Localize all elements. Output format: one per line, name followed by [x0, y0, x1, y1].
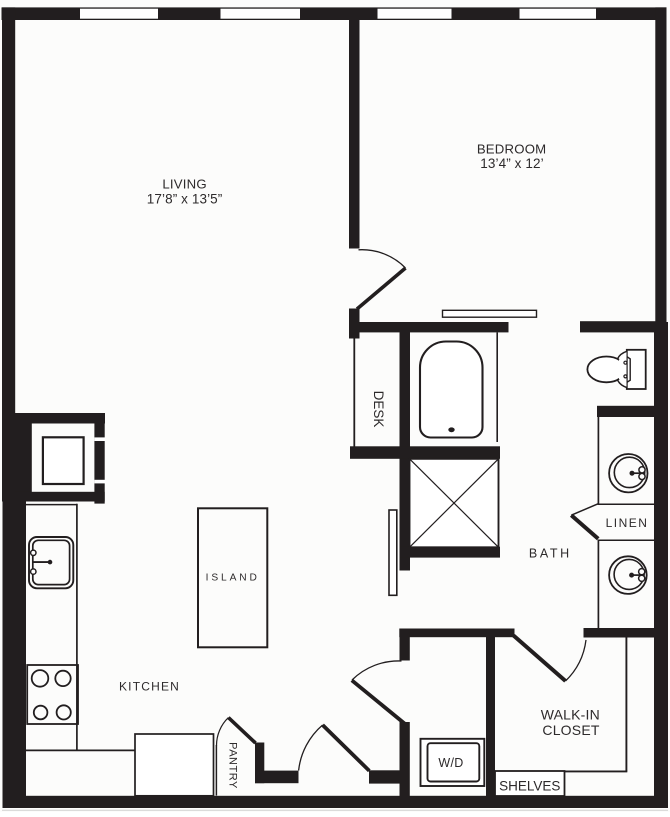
svg-text:W/D: W/D [438, 756, 463, 770]
svg-text:BEDROOM: BEDROOM [477, 141, 547, 156]
svg-text:13’4” x 12’: 13’4” x 12’ [480, 156, 543, 171]
svg-text:LIVING: LIVING [162, 176, 206, 191]
svg-text:CLOSET: CLOSET [542, 722, 599, 738]
svg-text:17’8” x 13’5”: 17’8” x 13’5” [147, 192, 223, 207]
svg-text:SHELVES: SHELVES [499, 779, 560, 794]
svg-text:LINEN: LINEN [606, 516, 649, 530]
svg-text:PANTRY: PANTRY [227, 742, 239, 789]
svg-text:WALK-IN: WALK-IN [541, 707, 600, 723]
svg-text:ISLAND: ISLAND [206, 573, 260, 584]
svg-text:DESK: DESK [371, 391, 386, 428]
svg-text:BATH: BATH [529, 547, 572, 561]
svg-text:KITCHEN: KITCHEN [119, 680, 180, 694]
